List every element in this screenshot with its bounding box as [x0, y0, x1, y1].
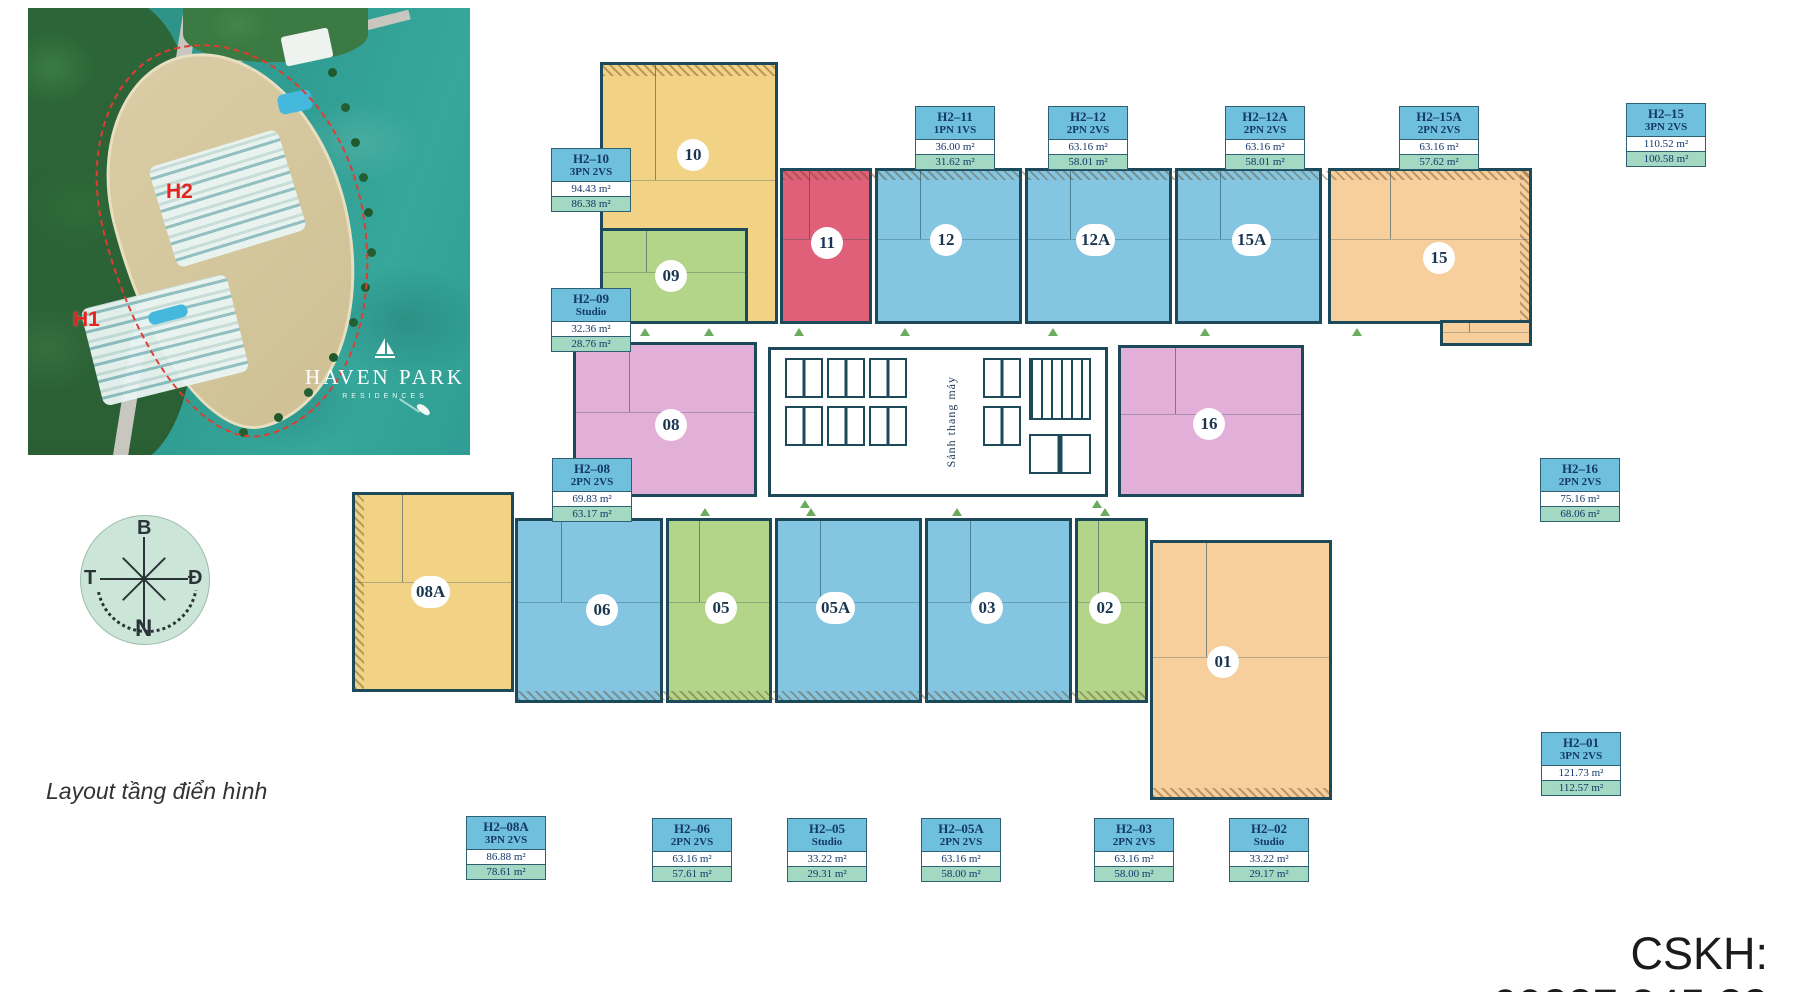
unit-number-badge: 15	[1423, 242, 1455, 274]
unit-type: 2PN 2VS	[1400, 124, 1478, 140]
unit-type: 2PN 2VS	[653, 836, 731, 852]
unit-code: H2–12	[1049, 107, 1127, 124]
compass-rose: B N T Đ	[80, 515, 208, 643]
balcony-hatch	[355, 495, 364, 689]
unit-code: H2–08	[553, 459, 631, 476]
unit-number-badge: 05	[705, 592, 737, 624]
unit-net-area: 58.00 m²	[1095, 867, 1173, 881]
unit-type: Studio	[552, 306, 630, 322]
door-marker-icon	[794, 328, 804, 336]
unit-net-area: 112.57 m²	[1542, 781, 1620, 795]
unit-gross-area: 33.22 m²	[788, 852, 866, 867]
unit-info-box-h2-12: H2–12 2PN 2VS 63.16 m² 58.01 m²	[1048, 106, 1128, 170]
door-marker-icon	[900, 328, 910, 336]
brand-subtitle: RESIDENCES	[285, 393, 470, 400]
unit-info-box-h2-15a: H2–15A 2PN 2VS 63.16 m² 57.62 m²	[1399, 106, 1479, 170]
unit-gross-area: 33.22 m²	[1230, 852, 1308, 867]
compass-east: Đ	[188, 567, 202, 590]
door-marker-icon	[1100, 508, 1110, 516]
compass-west: T	[84, 567, 96, 590]
unit-gross-area: 63.16 m²	[1400, 140, 1478, 155]
unit-type: 2PN 2VS	[553, 476, 631, 492]
compass-south: N	[135, 615, 152, 643]
unit-type: 3PN 2VS	[552, 166, 630, 182]
unit-gross-area: 75.16 m²	[1541, 492, 1619, 507]
unit-type: Studio	[1230, 836, 1308, 852]
unit-number-badge: 12	[930, 224, 962, 256]
unit-type: 3PN 2VS	[1542, 750, 1620, 766]
unit-code: H2–12A	[1226, 107, 1304, 124]
unit-number-badge: 15A	[1232, 224, 1271, 256]
elevator-shaft	[869, 406, 907, 446]
balcony-hatch	[603, 65, 775, 76]
site-aerial-map: H2 H1 HAVEN PARK RESIDENCES	[28, 8, 470, 455]
unit-type: 3PN 2VS	[467, 834, 545, 850]
door-marker-icon	[1200, 328, 1210, 336]
door-marker-icon	[704, 328, 714, 336]
unit-net-area: 78.61 m²	[467, 865, 545, 879]
unit-gross-area: 94.43 m²	[552, 182, 630, 197]
building-core: Sảnh thang máy	[768, 347, 1108, 497]
unit-number-badge: 05A	[816, 592, 855, 624]
door-marker-icon	[640, 328, 650, 336]
unit-number-badge: 16	[1193, 408, 1225, 440]
door-marker-icon	[800, 500, 810, 508]
unit-info-box-h2-12a: H2–12A 2PN 2VS 63.16 m² 58.01 m²	[1225, 106, 1305, 170]
unit-number-badge: 11	[811, 227, 843, 259]
unit-number-badge: 03	[971, 592, 1003, 624]
unit-info-box-h2-03: H2–03 2PN 2VS 63.16 m² 58.00 m²	[1094, 818, 1174, 882]
unit-code: H2–15	[1627, 104, 1705, 121]
sailboat-icon	[373, 336, 397, 358]
unit-gross-area: 69.83 m²	[553, 492, 631, 507]
unit-net-area: 57.61 m²	[653, 867, 731, 881]
unit-net-area: 29.31 m²	[788, 867, 866, 881]
unit-01-area	[1150, 540, 1332, 800]
unit-number-badge: 10	[677, 139, 709, 171]
unit-type: Studio	[788, 836, 866, 852]
unit-number-badge: 12A	[1076, 224, 1115, 256]
elevator-shaft	[827, 406, 865, 446]
brand-title: HAVEN PARK	[285, 365, 470, 390]
shore-trees	[28, 8, 37, 17]
poster-canvas: H2 H1 HAVEN PARK RESIDENCES B N T Đ Layo…	[0, 0, 1800, 992]
door-marker-icon	[700, 508, 710, 516]
unit-code: H2–06	[653, 819, 731, 836]
unit-net-area: 28.76 m²	[552, 337, 630, 351]
unit-number-badge: 09	[655, 260, 687, 292]
unit-code: H2–05A	[922, 819, 1000, 836]
unit-info-box-h2-08: H2–08 2PN 2VS 69.83 m² 63.17 m²	[552, 458, 632, 522]
unit-info-box-h2-05a: H2–05A 2PN 2VS 63.16 m² 58.00 m²	[921, 818, 1001, 882]
boat	[415, 402, 431, 417]
unit-net-area: 57.62 m²	[1400, 155, 1478, 169]
unit-code: H2–09	[552, 289, 630, 306]
unit-number-badge: 08A	[411, 576, 450, 608]
elevator-shaft	[785, 406, 823, 446]
unit-net-area: 31.62 m²	[916, 155, 994, 169]
balcony-hatch	[783, 171, 1529, 180]
door-marker-icon	[806, 508, 816, 516]
unit-gross-area: 110.52 m²	[1627, 137, 1705, 152]
unit-gross-area: 63.16 m²	[653, 852, 731, 867]
unit-code: H2–02	[1230, 819, 1308, 836]
customer-service-hotline: CSKH: 09887.345.88	[1388, 928, 1768, 992]
balcony-hatch	[1153, 788, 1329, 797]
unit-info-box-h2-10: H2–10 3PN 2VS 94.43 m² 86.38 m²	[551, 148, 631, 212]
unit-info-box-h2-01: H2–01 3PN 2VS 121.73 m² 112.57 m²	[1541, 732, 1621, 796]
elevator-shaft	[983, 358, 1021, 398]
unit-info-box-h2-16: H2–16 2PN 2VS 75.16 m² 68.06 m²	[1540, 458, 1620, 522]
unit-type: 2PN 2VS	[1095, 836, 1173, 852]
unit-net-area: 58.00 m²	[922, 867, 1000, 881]
unit-type: 2PN 2VS	[1049, 124, 1127, 140]
elevator-shaft	[869, 358, 907, 398]
unit-type: 2PN 2VS	[922, 836, 1000, 852]
map-label-h1: H1	[73, 308, 100, 332]
unit-code: H2–11	[916, 107, 994, 124]
map-label-h2: H2	[166, 180, 193, 204]
unit-code: H2–10	[552, 149, 630, 166]
unit-net-area: 86.38 m²	[552, 197, 630, 211]
unit-type: 3PN 2VS	[1627, 121, 1705, 137]
unit-info-box-h2-15: H2–15 3PN 2VS 110.52 m² 100.58 m²	[1626, 103, 1706, 167]
unit-info-box-h2-02: H2–02 Studio 33.22 m² 29.17 m²	[1229, 818, 1309, 882]
balcony-hatch	[1520, 171, 1529, 321]
unit-net-area: 100.58 m²	[1627, 152, 1705, 166]
unit-15-extension	[1440, 320, 1532, 346]
unit-number-badge: 01	[1207, 646, 1239, 678]
elevator-shaft	[983, 406, 1021, 446]
unit-net-area: 58.01 m²	[1049, 155, 1127, 169]
unit-info-box-h2-08a: H2–08A 3PN 2VS 86.88 m² 78.61 m²	[466, 816, 546, 880]
unit-number-badge: 08	[655, 409, 687, 441]
unit-type: 1PN 1VS	[916, 124, 994, 140]
floor-caption: Layout tầng điển hình	[46, 778, 267, 805]
unit-number-badge: 02	[1089, 592, 1121, 624]
lift-lobby-label: Sảnh thang máy	[944, 376, 959, 467]
staircase	[1029, 358, 1091, 420]
unit-gross-area: 63.16 m²	[1226, 140, 1304, 155]
compass-north: B	[137, 517, 151, 540]
unit-net-area: 58.01 m²	[1226, 155, 1304, 169]
unit-type: 2PN 2VS	[1541, 476, 1619, 492]
unit-gross-area: 63.16 m²	[1095, 852, 1173, 867]
elevator-shaft	[785, 358, 823, 398]
unit-code: H2–15A	[1400, 107, 1478, 124]
balcony-hatch	[518, 691, 1145, 700]
unit-gross-area: 36.00 m²	[916, 140, 994, 155]
unit-info-box-h2-09: H2–09 Studio 32.36 m² 28.76 m²	[551, 288, 631, 352]
unit-type: 2PN 2VS	[1226, 124, 1304, 140]
unit-code: H2–03	[1095, 819, 1173, 836]
unit-net-area: 29.17 m²	[1230, 867, 1308, 881]
unit-info-box-h2-11: H2–11 1PN 1VS 36.00 m² 31.62 m²	[915, 106, 995, 170]
lift-lobby: Sảnh thang máy	[929, 354, 973, 490]
unit-gross-area: 32.36 m²	[552, 322, 630, 337]
unit-gross-area: 63.16 m²	[1049, 140, 1127, 155]
unit-code: H2–08A	[467, 817, 545, 834]
unit-info-box-h2-06: H2–06 2PN 2VS 63.16 m² 57.61 m²	[652, 818, 732, 882]
door-marker-icon	[952, 508, 962, 516]
unit-code: H2–05	[788, 819, 866, 836]
brand-logo: HAVEN PARK RESIDENCES	[285, 336, 470, 400]
door-marker-icon	[1092, 500, 1102, 508]
unit-gross-area: 86.88 m²	[467, 850, 545, 865]
unit-code: H2–16	[1541, 459, 1619, 476]
unit-gross-area: 121.73 m²	[1542, 766, 1620, 781]
unit-net-area: 68.06 m²	[1541, 507, 1619, 521]
unit-info-box-h2-05: H2–05 Studio 33.22 m² 29.31 m²	[787, 818, 867, 882]
unit-code: H2–01	[1542, 733, 1620, 750]
utility-room	[1029, 434, 1091, 474]
unit-number-badge: 06	[586, 594, 618, 626]
unit-net-area: 63.17 m²	[553, 507, 631, 521]
door-marker-icon	[1352, 328, 1362, 336]
unit-gross-area: 63.16 m²	[922, 852, 1000, 867]
elevator-shaft	[827, 358, 865, 398]
door-marker-icon	[1048, 328, 1058, 336]
